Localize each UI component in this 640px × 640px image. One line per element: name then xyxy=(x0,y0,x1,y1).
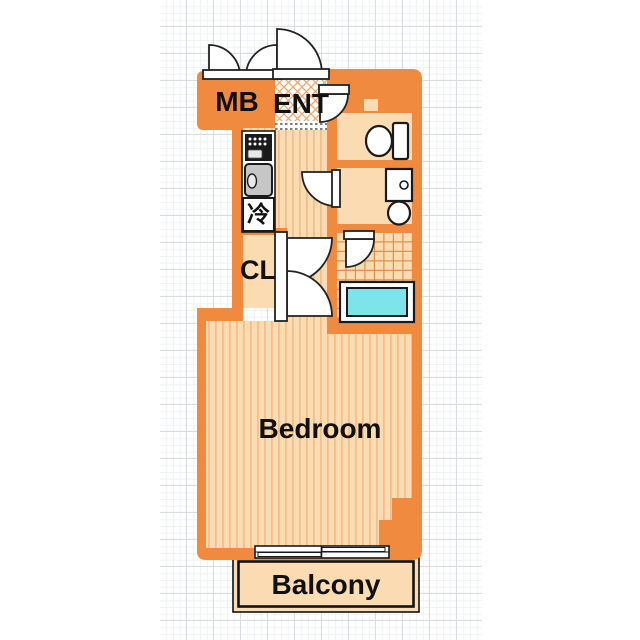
stove xyxy=(245,134,272,161)
closet-label: CL xyxy=(240,255,276,285)
toilet xyxy=(366,123,408,159)
meter-box-label: MB xyxy=(215,86,259,117)
entrance-label: ENT xyxy=(273,88,329,119)
kitchen-area: 冷 xyxy=(242,131,275,232)
balcony-label: Balcony xyxy=(272,569,381,600)
refrigerator-space: 冷 xyxy=(243,198,274,231)
closet-door-panel xyxy=(275,232,287,321)
bathtub xyxy=(340,282,414,322)
sink xyxy=(245,164,272,196)
floor-plan-canvas: 冷 xyxy=(0,0,640,640)
sliding-window xyxy=(255,546,389,558)
refrigerator-label: 冷 xyxy=(247,201,270,227)
bedroom-label: Bedroom xyxy=(259,413,382,444)
washing-machine xyxy=(388,202,410,225)
wall-niche xyxy=(364,99,378,111)
floor-plan-svg: 冷 xyxy=(0,0,640,640)
washbasin xyxy=(386,169,412,201)
